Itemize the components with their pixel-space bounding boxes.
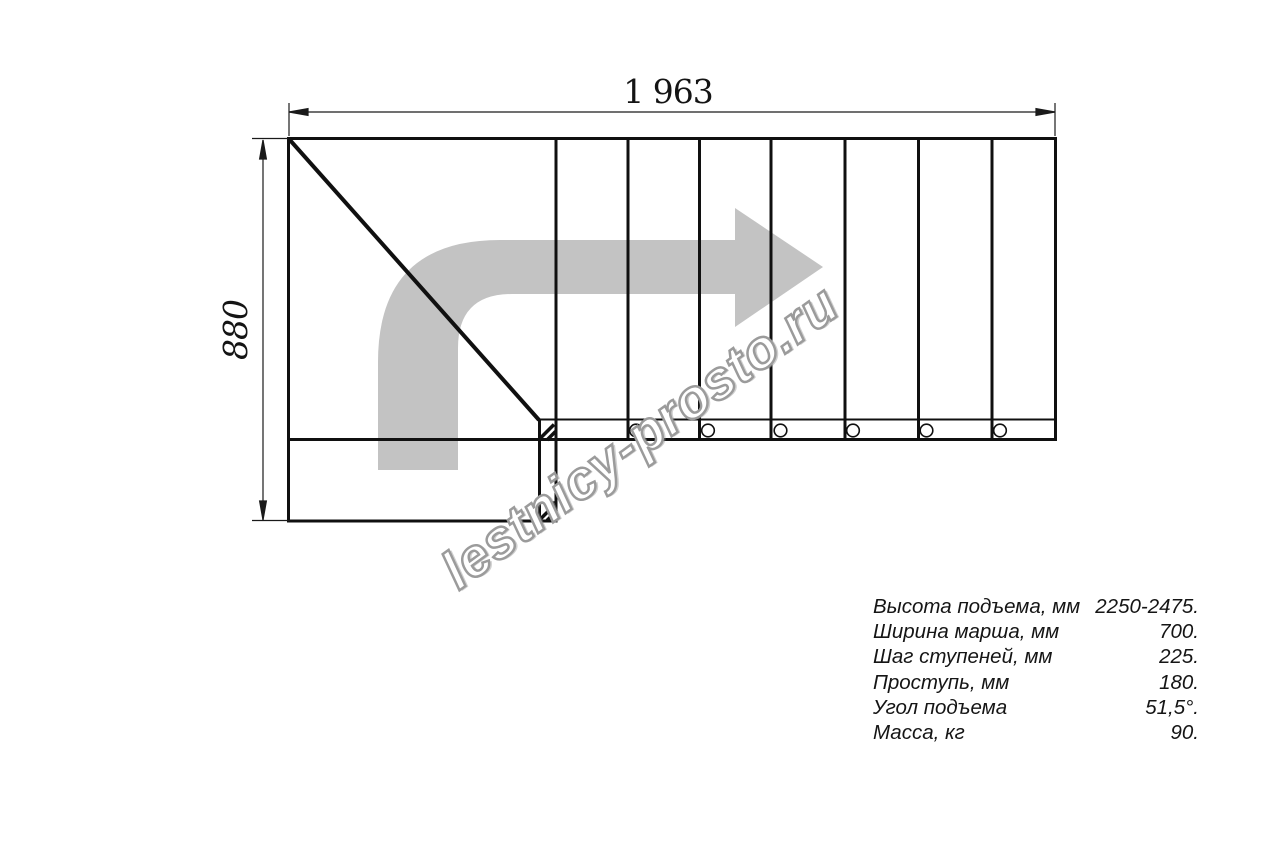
spec-row: Высота подъема, мм 2250-2475. xyxy=(873,594,1199,619)
spec-label: Высота подъема, мм xyxy=(873,594,1080,619)
stringer-hole xyxy=(774,424,787,437)
dimension-arrowhead xyxy=(1036,109,1055,116)
spec-row: Ширина марша, мм 700. xyxy=(873,619,1199,644)
spec-label: Угол подъема xyxy=(873,695,1007,720)
direction-arrow xyxy=(378,208,823,470)
stringer-hole xyxy=(702,424,715,437)
dimension-arrowhead xyxy=(260,501,267,520)
dimension-label-width: 1 963 xyxy=(623,72,712,111)
spec-value: 180. xyxy=(1159,670,1199,695)
dimension-label-height: 880 xyxy=(216,300,255,360)
spec-value: 700. xyxy=(1159,619,1199,644)
spec-value: 2250-2475. xyxy=(1095,594,1199,619)
newel-hatch-bottom xyxy=(541,505,556,521)
stringer-hole xyxy=(920,424,933,437)
spec-value: 225. xyxy=(1159,644,1199,669)
stringer-hole xyxy=(847,424,860,437)
stair-plan-page: 1 963 880 lestnicy-prosto.ru Высота подъ… xyxy=(0,0,1280,853)
dimension-height xyxy=(252,139,290,521)
spec-value: 90. xyxy=(1171,720,1200,745)
spec-row: Проступь, мм 180. xyxy=(873,670,1199,695)
newel-hatch-top xyxy=(541,425,556,441)
spec-label: Масса, кг xyxy=(873,720,965,745)
stringer-holes xyxy=(630,424,1007,437)
dimension-arrowhead xyxy=(289,109,308,116)
stringer-hole xyxy=(630,424,643,437)
dimension-arrowhead xyxy=(260,140,267,159)
spec-row: Шаг ступеней, мм 225. xyxy=(873,644,1199,669)
stringer-hole xyxy=(994,424,1007,437)
spec-label: Проступь, мм xyxy=(873,670,1009,695)
spec-row: Масса, кг 90. xyxy=(873,720,1199,745)
spec-table: Высота подъема, мм 2250-2475. Ширина мар… xyxy=(873,594,1199,745)
spec-row: Угол подъема 51,5°. xyxy=(873,695,1199,720)
spec-value: 51,5°. xyxy=(1145,695,1199,720)
spec-label: Ширина марша, мм xyxy=(873,619,1059,644)
spec-label: Шаг ступеней, мм xyxy=(873,644,1052,669)
